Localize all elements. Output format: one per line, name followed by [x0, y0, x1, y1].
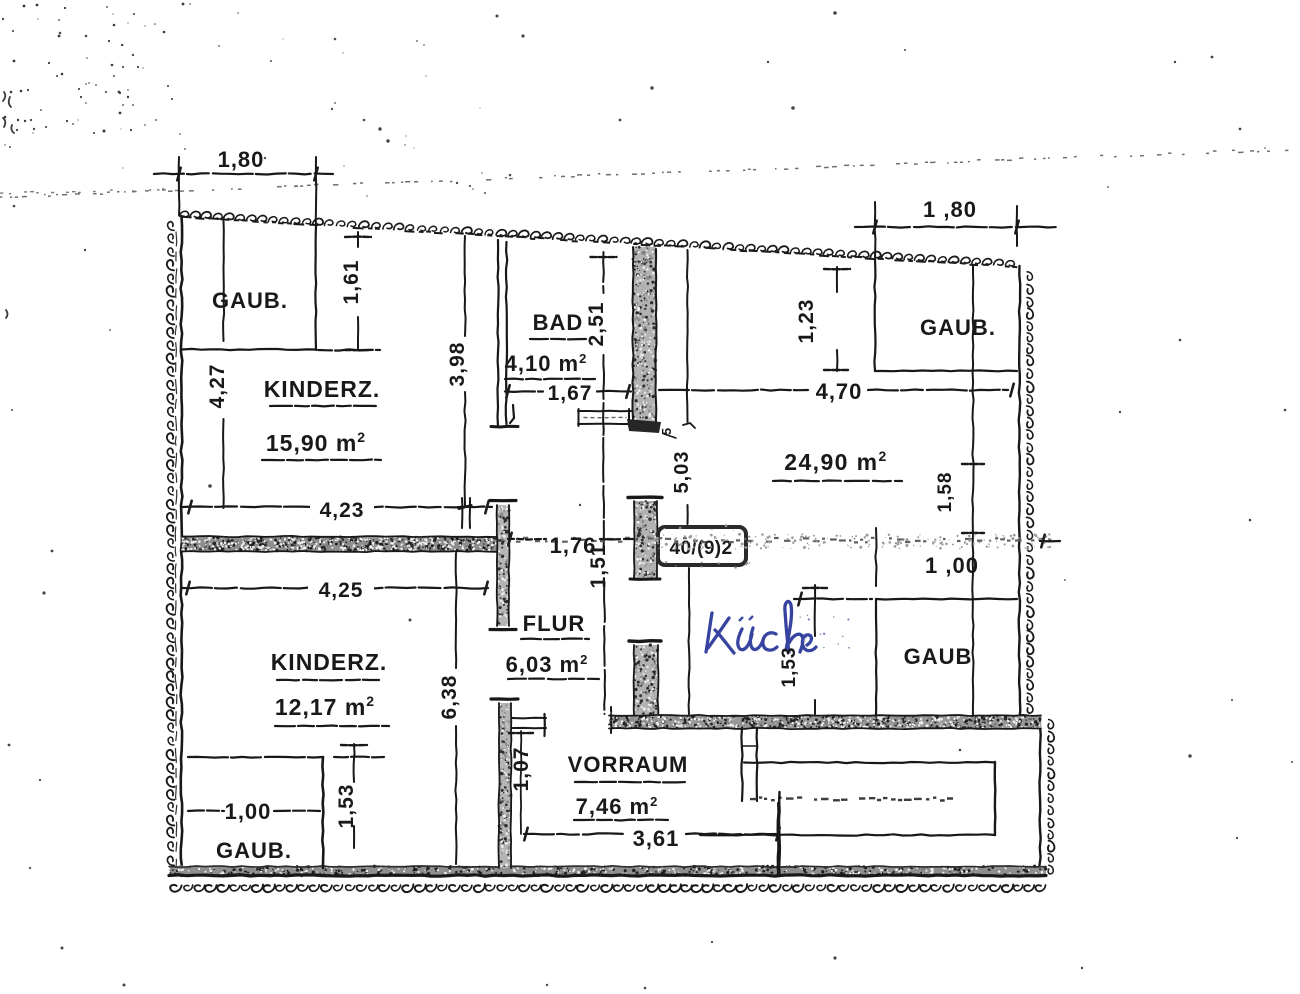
svg-text:3,61: 3,61: [633, 826, 680, 851]
svg-text:15,90 m2: 15,90 m2: [266, 429, 366, 456]
svg-text:2,51: 2,51: [585, 302, 608, 347]
svg-text:1,80: 1,80: [218, 147, 265, 172]
svg-text:GAUB: GAUB: [904, 644, 973, 669]
svg-text:4,10 m2: 4,10 m2: [505, 351, 588, 376]
svg-text:GAUB.: GAUB.: [920, 315, 996, 340]
svg-text:1,53: 1,53: [779, 647, 800, 688]
svg-text:1,07: 1,07: [510, 747, 533, 792]
svg-text:3,98: 3,98: [446, 342, 469, 387]
svg-text:1,61: 1,61: [340, 260, 363, 305]
svg-text:1,00: 1,00: [225, 799, 272, 824]
svg-text:5: 5: [659, 427, 674, 435]
svg-text:1,67: 1,67: [548, 382, 593, 405]
svg-text:1,76: 1,76: [550, 533, 597, 558]
svg-text:1,58: 1,58: [935, 472, 956, 513]
svg-text:4,25: 4,25: [319, 579, 364, 602]
svg-text:6,38: 6,38: [438, 675, 461, 720]
svg-text:1,53: 1,53: [335, 784, 358, 829]
svg-text:24,90 m2: 24,90 m2: [784, 448, 887, 475]
svg-text:12,17 m2: 12,17 m2: [275, 693, 375, 720]
svg-text:GAUB.: GAUB.: [216, 838, 292, 863]
svg-text:KINDERZ.: KINDERZ.: [264, 376, 381, 402]
svg-text:BAD: BAD: [533, 310, 584, 335]
svg-text:7,46 m2: 7,46 m2: [576, 794, 659, 819]
svg-text:6,03 m2: 6,03 m2: [506, 652, 589, 677]
svg-text:1 ,00: 1 ,00: [925, 553, 979, 578]
svg-text:1,23: 1,23: [795, 299, 818, 344]
svg-text:4,23: 4,23: [320, 499, 365, 522]
svg-text:KINDERZ.: KINDERZ.: [271, 649, 388, 675]
svg-text:4,70: 4,70: [816, 379, 863, 404]
svg-text:4,27: 4,27: [206, 364, 229, 409]
svg-text:5,03: 5,03: [671, 451, 693, 494]
svg-text:1 ,80: 1 ,80: [923, 197, 977, 222]
svg-text:VORRAUM: VORRAUM: [568, 752, 689, 777]
svg-text:FLUR: FLUR: [523, 611, 586, 636]
